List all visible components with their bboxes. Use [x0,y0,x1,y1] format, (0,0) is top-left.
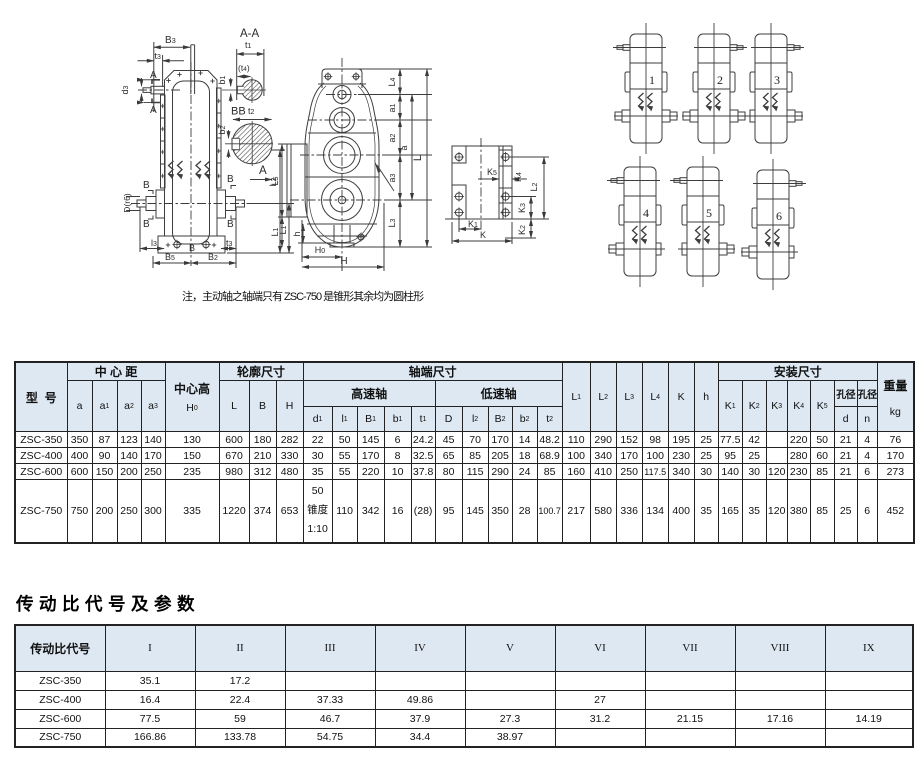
svg-text:3: 3 [774,73,780,87]
svg-text:BB: BB [231,106,246,118]
svg-text:L1: L1 [270,227,280,236]
svg-text:2: 2 [717,73,723,87]
svg-text:K2: K2 [517,225,527,235]
svg-text:K3: K3 [517,203,527,213]
svg-text:B: B [189,243,195,253]
svg-text:d3: d3 [120,85,130,94]
svg-text:L2: L2 [529,182,539,191]
svg-text:t3: t3 [226,238,233,248]
svg-text:L: L [412,155,424,161]
svg-text:H: H [340,256,347,267]
svg-text:h: h [292,231,302,236]
svg-text:b1: b1 [217,75,227,84]
svg-text:A: A [150,105,157,116]
svg-text:L4: L4 [387,77,397,86]
svg-text:D(r6): D(r6) [122,193,132,213]
svg-text:t1: t1 [245,40,252,50]
svg-text:L3: L3 [387,218,397,227]
svg-text:K4: K4 [513,172,523,182]
svg-text:B3: B3 [165,35,176,46]
svg-text:a1: a1 [387,103,397,112]
svg-text:B: B [227,174,234,185]
svg-text:a3: a3 [387,173,397,182]
svg-text:a: a [399,145,409,150]
svg-text:4: 4 [643,206,649,220]
svg-text:B: B [143,180,150,191]
svg-text:K5: K5 [487,167,497,177]
svg-text:A: A [259,165,267,177]
svg-text:K1: K1 [468,219,478,229]
svg-text:5: 5 [706,206,712,220]
svg-text:a2: a2 [387,133,397,142]
svg-text:H0: H0 [315,245,326,255]
svg-text:l3: l3 [151,238,157,248]
svg-text:A-A: A-A [240,28,260,40]
svg-text:B: B [143,219,150,230]
svg-text:1: 1 [649,73,655,87]
svg-text:K: K [480,230,486,240]
svg-text:6: 6 [776,209,782,223]
svg-text:t2: t2 [248,106,255,116]
svg-text:B: B [227,219,234,230]
svg-text:t3: t3 [155,51,162,61]
svg-text:(t4): (t4) [238,63,250,73]
